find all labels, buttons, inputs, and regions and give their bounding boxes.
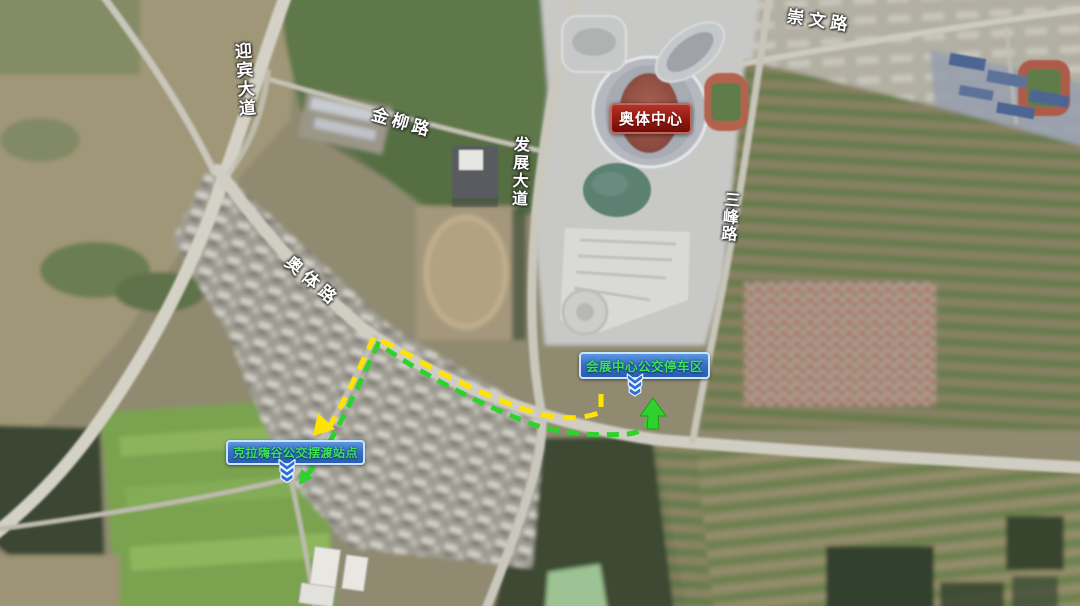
kela-valley-shuttle-stop-badge: 克拉嗨谷公交摆渡站点	[226, 440, 365, 465]
terrain-fields	[0, 0, 1080, 606]
satellite-map-screenshot[interactable]: 迎宾大道 金柳路 发展大道 崇文路 三峰路 奥体路 奥体中心 会展中心公交停车区…	[0, 0, 1080, 606]
convention-center-bus-parking-badge: 会展中心公交停车区	[579, 352, 710, 379]
satellite-imagery	[0, 0, 1080, 606]
olympic-center-badge: 奥体中心	[610, 103, 692, 134]
